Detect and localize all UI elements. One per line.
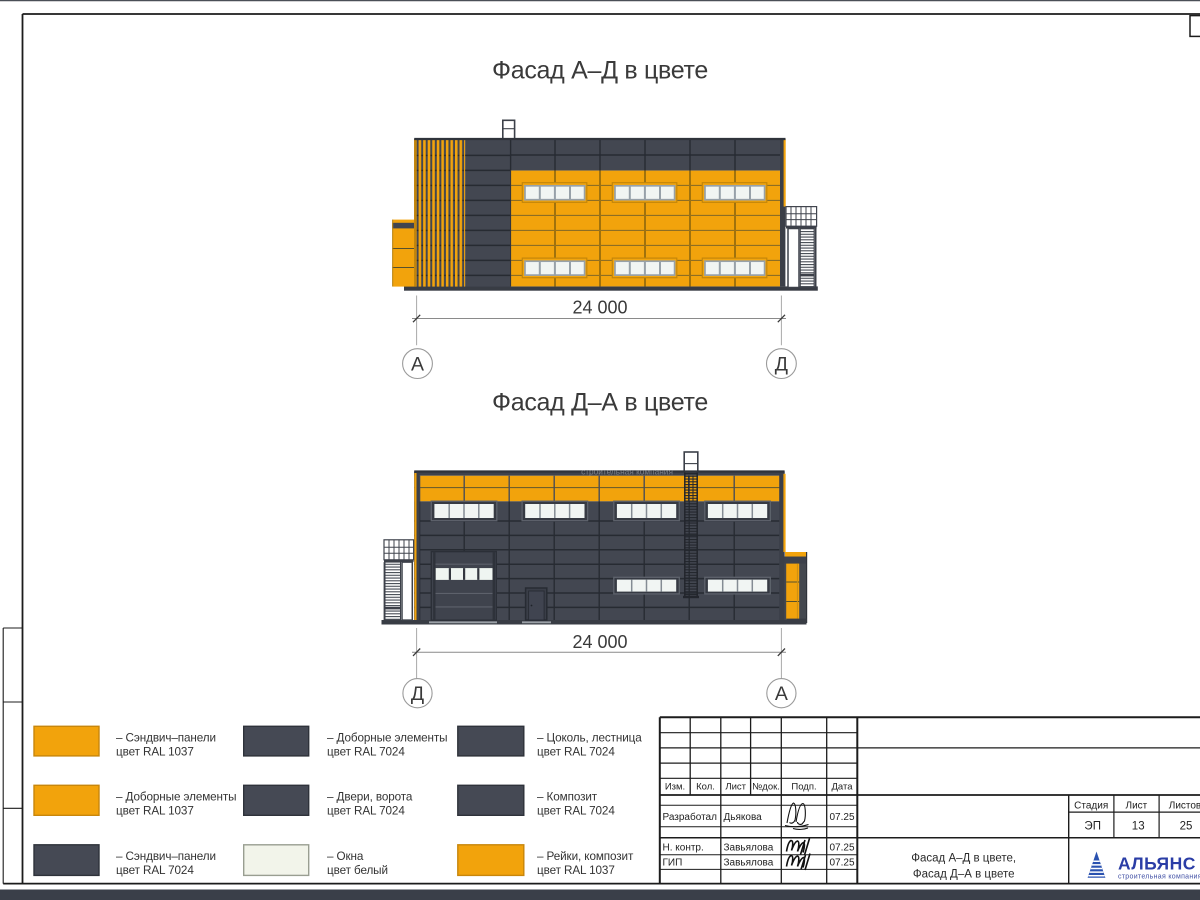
svg-text:Подп.: Подп. <box>791 782 816 793</box>
svg-text:цвет RAL 7024: цвет RAL 7024 <box>327 805 405 818</box>
svg-text:цвет RAL 1037: цвет RAL 1037 <box>116 805 194 818</box>
svg-text:АЛЬЯНС: АЛЬЯНС <box>1118 854 1196 874</box>
svg-text:07.25: 07.25 <box>829 812 854 823</box>
svg-text:Лист: Лист <box>725 782 746 793</box>
svg-text:Д: Д <box>411 683 424 705</box>
svg-text:А: А <box>775 683 788 705</box>
svg-text:13: 13 <box>1132 821 1145 833</box>
svg-text:строительная компания: строительная компания <box>581 467 673 477</box>
svg-text:Фасад А–Д в цвете: Фасад А–Д в цвете <box>492 57 708 85</box>
svg-text:Дата: Дата <box>831 782 853 793</box>
svg-text:– Сэндвич–панели: – Сэндвич–панели <box>116 732 216 745</box>
svg-text:24 000: 24 000 <box>572 632 627 652</box>
svg-text:– Рейки, композит: – Рейки, композит <box>537 850 634 863</box>
svg-text:Дьякова: Дьякова <box>724 812 763 823</box>
svg-text:А: А <box>411 354 424 376</box>
svg-text:ГИП: ГИП <box>663 857 683 868</box>
svg-text:строительная компания: строительная компания <box>1118 874 1200 881</box>
svg-text:цвет RAL 7024: цвет RAL 7024 <box>327 746 405 759</box>
svg-text:цвет RAL 7024: цвет RAL 7024 <box>537 746 615 759</box>
svg-text:– Цоколь, лестница: – Цоколь, лестница <box>537 732 642 745</box>
svg-text:№док.: №док. <box>752 782 780 793</box>
svg-text:Фасад А–Д в цвете,: Фасад А–Д в цвете, <box>911 853 1016 865</box>
svg-text:Завьялова: Завьялова <box>724 843 774 854</box>
svg-text:цвет RAL 7024: цвет RAL 7024 <box>537 805 615 818</box>
svg-text:Лист: Лист <box>1126 800 1148 811</box>
svg-text:– Сэндвич–панели: – Сэндвич–панели <box>116 850 216 863</box>
svg-text:– Доборные элементы: – Доборные элементы <box>116 791 236 804</box>
svg-text:цвет белый: цвет белый <box>327 864 388 877</box>
svg-text:Разработал: Разработал <box>663 811 718 823</box>
svg-text:Листов: Листов <box>1169 800 1200 811</box>
svg-text:цвет RAL 1037: цвет RAL 1037 <box>537 864 615 877</box>
svg-text:Д: Д <box>775 354 788 376</box>
svg-text:24 000: 24 000 <box>572 298 627 318</box>
svg-text:25: 25 <box>1180 821 1193 833</box>
svg-text:– Доборные элементы: – Доборные элементы <box>327 732 447 745</box>
svg-text:ЭП: ЭП <box>1084 821 1101 833</box>
svg-text:Фасад Д–А в цвете: Фасад Д–А в цвете <box>492 389 708 417</box>
svg-text:07.25: 07.25 <box>829 843 854 854</box>
svg-text:Завьялова: Завьялова <box>724 857 774 868</box>
svg-text:– Окна: – Окна <box>327 850 364 863</box>
svg-text:– Композит: – Композит <box>537 791 598 804</box>
svg-text:Кол.: Кол. <box>696 782 715 793</box>
svg-text:Стадия: Стадия <box>1074 800 1108 811</box>
svg-text:– Двери, ворота: – Двери, ворота <box>327 791 413 804</box>
svg-text:Н. контр.: Н. контр. <box>663 843 704 854</box>
svg-text:цвет RAL 7024: цвет RAL 7024 <box>116 864 194 877</box>
svg-text:цвет RAL 1037: цвет RAL 1037 <box>116 746 194 759</box>
svg-text:Изм.: Изм. <box>665 782 685 793</box>
svg-text:07.25: 07.25 <box>829 857 854 868</box>
svg-text:Фасад Д–А в цвете: Фасад Д–А в цвете <box>913 869 1015 881</box>
